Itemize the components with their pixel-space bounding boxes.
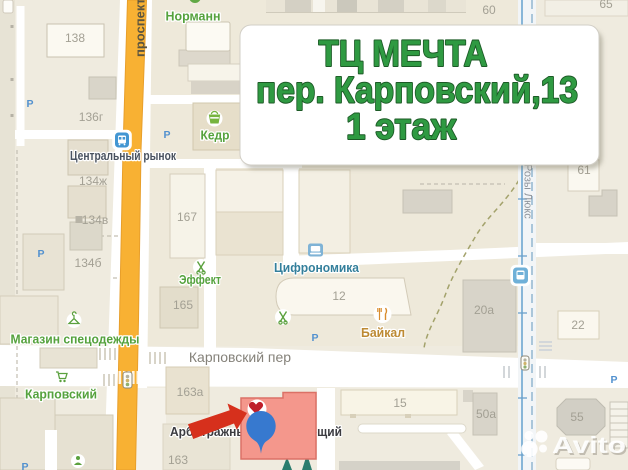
svg-text:134в: 134в <box>82 213 108 227</box>
svg-text:163а: 163а <box>177 385 204 399</box>
svg-text:Цифрономика: Цифрономика <box>274 260 360 275</box>
svg-text:60: 60 <box>482 3 496 17</box>
svg-text:Норманн: Норманн <box>166 9 221 24</box>
svg-text:22: 22 <box>571 318 585 332</box>
svg-text:Карповский: Карповский <box>25 387 97 402</box>
svg-text:Avito: Avito <box>552 432 626 458</box>
svg-text:163: 163 <box>168 453 188 467</box>
svg-text:50а: 50а <box>476 407 496 421</box>
svg-text:167: 167 <box>177 210 197 224</box>
svg-text:Р: Р <box>311 332 318 344</box>
svg-text:Магазин спецодежды: Магазин спецодежды <box>11 332 140 347</box>
svg-text:Кедр: Кедр <box>201 128 230 143</box>
svg-text:Эффект: Эффект <box>179 272 221 287</box>
svg-text:134б: 134б <box>75 256 102 270</box>
svg-text:165: 165 <box>173 298 193 312</box>
svg-text:134ж: 134ж <box>79 174 107 188</box>
svg-text:65: 65 <box>599 0 613 11</box>
svg-text:Р: Р <box>610 374 617 386</box>
svg-text:138: 138 <box>65 31 85 45</box>
svg-text:Байкал: Байкал <box>361 325 405 340</box>
svg-text:Центральный рынок: Центральный рынок <box>70 149 177 163</box>
svg-text:пер. Карповский,13: пер. Карповский,13 <box>256 70 578 111</box>
svg-text:20а: 20а <box>474 303 494 317</box>
svg-text:ТЦ МЕЧТА: ТЦ МЕЧТА <box>319 33 488 74</box>
svg-text:Р: Р <box>26 98 33 110</box>
svg-text:проспект: проспект <box>133 0 148 57</box>
svg-text:Р: Р <box>37 248 44 260</box>
svg-text:55: 55 <box>570 410 584 424</box>
svg-text:15: 15 <box>393 396 407 410</box>
svg-text:Р: Р <box>163 129 170 141</box>
svg-text:Карповский пер: Карповский пер <box>189 349 291 365</box>
svg-text:12: 12 <box>332 289 346 303</box>
svg-text:136г: 136г <box>79 110 104 124</box>
svg-text:Розы Люкс: Розы Люкс <box>522 164 534 219</box>
svg-text:1 этаж: 1 этаж <box>346 106 457 147</box>
svg-text:Р: Р <box>21 461 28 470</box>
